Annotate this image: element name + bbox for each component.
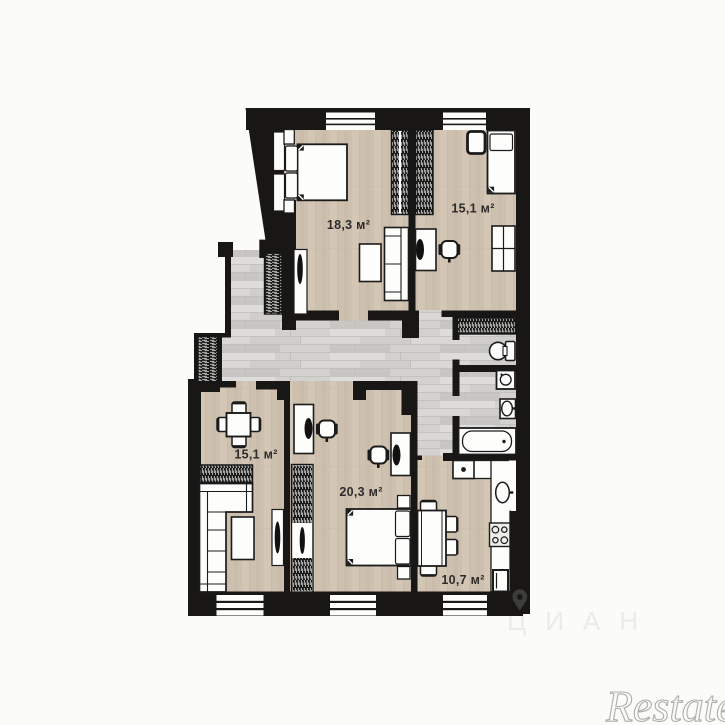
svg-text:18,3 м²: 18,3 м² [327,218,370,232]
svg-text:20,3 м²: 20,3 м² [339,485,382,499]
svg-text:15,1 м²: 15,1 м² [451,202,494,216]
svg-text:15,1 м²: 15,1 м² [234,448,277,462]
svg-text:10,7 м²: 10,7 м² [441,573,484,587]
svg-text:Restate: Restate [605,682,725,725]
